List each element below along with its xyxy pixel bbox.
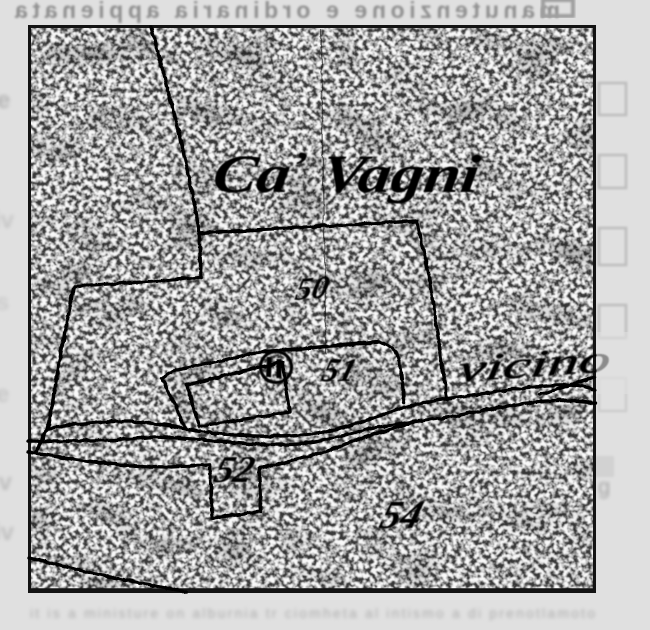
svg-text:s: s: [0, 289, 9, 316]
svg-text:g: g: [598, 474, 610, 499]
svg-text:e: e: [0, 381, 9, 408]
svg-text:Ca’ Vagni: Ca’ Vagni: [209, 144, 483, 204]
svg-text:iv: iv: [0, 519, 15, 546]
svg-text:it is a ministure on alburnia: it is a ministure on alburnia tr ciomhet…: [30, 605, 595, 621]
svg-text:iv: iv: [0, 469, 13, 496]
svg-text:iv: iv: [0, 207, 15, 234]
svg-text:e: e: [0, 87, 10, 114]
